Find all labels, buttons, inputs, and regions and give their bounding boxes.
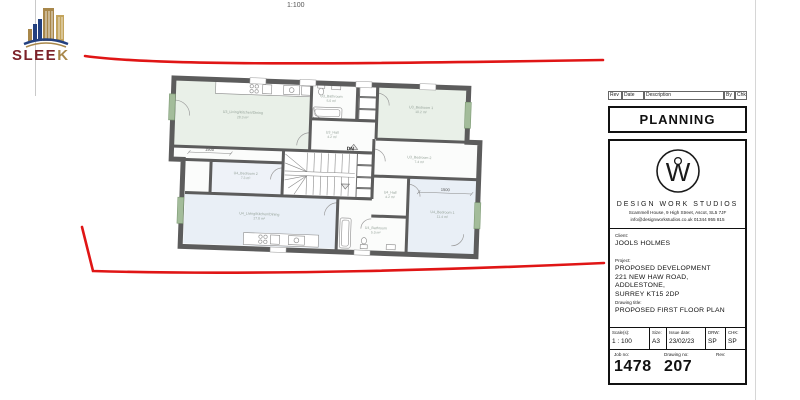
studio-section: W DESIGN WORK STUDIOS Scammell House, 9 … [610, 141, 745, 229]
studio-name: DESIGN WORK STUDIOS [610, 201, 745, 208]
upper-closets [359, 85, 377, 120]
rev-block: Rev: [716, 352, 741, 383]
dimension-label-2: 1500 [441, 187, 451, 192]
client-label: Client: [615, 233, 740, 238]
red-annotation-top [85, 56, 603, 63]
drw-value: SP [708, 338, 723, 345]
stair-closets [356, 153, 373, 197]
title-block-main: W DESIGN WORK STUDIOS Scammell House, 9 … [608, 139, 747, 385]
studio-contact: info@designworkstudios.co.uk 01344 955 8… [610, 217, 745, 223]
sheet-border-line [755, 0, 756, 400]
chk-col-header: Chk [735, 91, 747, 100]
drawing-title-label: Drawing title: [615, 300, 740, 305]
drawing-sheet: SLEEK 1:100 [0, 0, 800, 400]
date-col-header: Date [622, 91, 644, 100]
drawing-no-value: 207 [664, 358, 716, 376]
room-area: 7.3 m² [241, 176, 252, 180]
room-area: 28.3 m² [237, 115, 249, 119]
room-area: 4.2 m² [327, 135, 338, 139]
description-col-header: Description [644, 91, 724, 100]
issue-date-value: 23/02/23 [669, 338, 703, 345]
room-area: 4.2 m² [385, 195, 396, 199]
project-block: Project: PROPOSED DEVELOPMENT 221 NEW HA… [615, 258, 740, 300]
scale-label: Scale(s): [612, 330, 647, 335]
room-area: 10.2 m² [415, 110, 427, 114]
size-cell: Size: A3 [650, 328, 667, 349]
project-line: SURREY KT15 2DP [615, 291, 740, 300]
studio-logo: W [653, 145, 703, 195]
dimension-label-1: 1500 [205, 147, 215, 152]
floor-plan: 1500 1500 U3_Living/Kitchen/Dining 28.3 … [158, 64, 497, 271]
client-name: JOOLS HOLMES [615, 240, 740, 247]
room-area: 5.0 m² [326, 99, 337, 103]
meta-table: Scale(s): 1 : 100 Size: A3 Issue date: 2… [610, 327, 745, 350]
drawing-no-label: Drawing no: [664, 352, 716, 357]
title-block: Rev Date Description By Chk PLANNING W D… [608, 91, 747, 385]
sleek-logo: SLEEK [10, 3, 105, 65]
rev-col-header: Rev [608, 91, 622, 100]
size-value: A3 [652, 338, 664, 345]
drawing-title: PROPOSED FIRST FLOOR PLAN [615, 307, 740, 314]
room-area: 5.0 m² [371, 230, 382, 234]
by-col-header: By [724, 91, 735, 100]
scale-value: 1 : 100 [612, 338, 647, 345]
room-area: 11.4 m² [437, 215, 449, 219]
drw-cell: DRW: SP [706, 328, 726, 349]
room-area: 27.8 m² [253, 216, 265, 220]
stair-dn-label: DN [347, 146, 355, 152]
job-no-value: 1478 [614, 358, 664, 376]
rev-label: Rev: [716, 352, 741, 357]
job-no-label: Job no: [614, 352, 664, 357]
room-area: 7.4 m² [414, 160, 425, 164]
drawing-no-block: Drawing no: 207 [664, 352, 716, 383]
chk-label: CHK: [728, 330, 743, 335]
project-line: 221 NEW HAW ROAD, ADDLESTONE, [615, 274, 740, 291]
sleek-wordmark-accent: K [57, 47, 69, 64]
footer-section: Job no: 1478 Drawing no: 207 Rev: [610, 350, 745, 383]
scale-cell: Scale(s): 1 : 100 [610, 328, 650, 349]
project-line: PROPOSED DEVELOPMENT [615, 265, 740, 274]
chk-cell: CHK: SP [726, 328, 745, 349]
issue-date-label: Issue date: [669, 330, 703, 335]
revision-table: Rev Date Description By Chk [608, 91, 747, 100]
job-no-block: Job no: 1478 [614, 352, 664, 383]
drawing-title-block: Drawing title: PROPOSED FIRST FLOOR PLAN [615, 300, 740, 327]
drw-label: DRW: [708, 330, 723, 335]
info-section: Client: JOOLS HOLMES Project: PROPOSED D… [610, 229, 745, 327]
size-label: Size: [652, 330, 664, 335]
sheet-scale-note: 1:100 [287, 2, 305, 9]
status-banner: PLANNING [608, 106, 747, 133]
studio-address: Scammell House, 9 High Street, Ascot, SL… [610, 210, 745, 216]
project-label: Project: [615, 258, 740, 263]
issue-date-cell: Issue date: 23/02/23 [667, 328, 706, 349]
sleek-wordmark: SLEEK [12, 47, 70, 64]
client-block: Client: JOOLS HOLMES [615, 233, 740, 258]
kitchen-lower [243, 233, 318, 248]
sleek-wordmark-main: SLEE [12, 47, 57, 64]
chk-value: SP [728, 338, 743, 345]
